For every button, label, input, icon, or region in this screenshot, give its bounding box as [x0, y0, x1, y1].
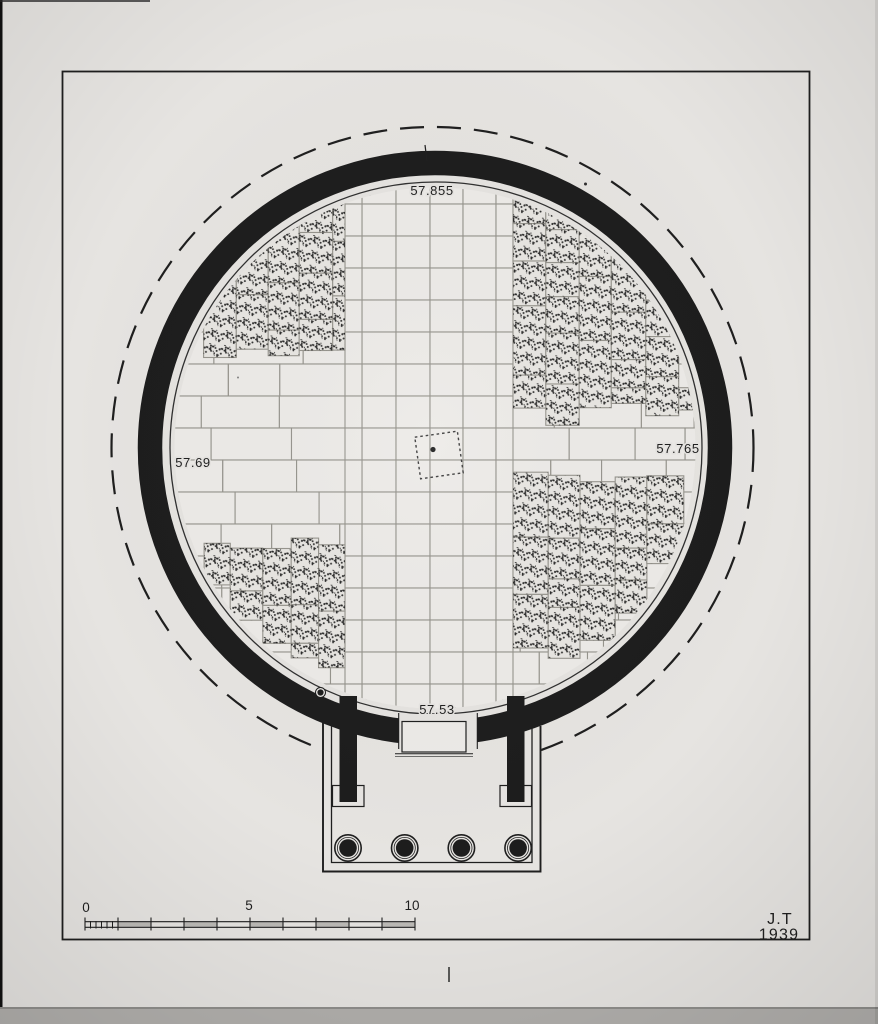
stipple-texture	[268, 283, 299, 330]
stipple-texture	[615, 477, 647, 548]
pavement-slab	[430, 652, 463, 684]
pavement-slab	[463, 396, 496, 428]
stipple-texture	[580, 585, 615, 640]
scale-label-5: 5	[245, 898, 253, 913]
pavement-slab	[362, 492, 396, 524]
pavement-slab	[496, 556, 513, 588]
pavement-slab	[430, 588, 463, 620]
pavement-slab	[362, 652, 396, 684]
pavement-slab	[463, 652, 496, 684]
stipple-texture	[299, 273, 333, 319]
pavement-slab	[345, 524, 362, 556]
pavement-slab	[496, 428, 513, 460]
stipple-texture	[333, 241, 345, 296]
pavement-slab	[463, 268, 496, 300]
stipple-texture	[513, 537, 548, 594]
pavement-slab	[430, 396, 463, 428]
pavement-cross-arm	[345, 172, 513, 748]
pavement-slab	[396, 364, 430, 396]
pavement-slab	[396, 332, 430, 364]
film-edge-tick	[448, 967, 450, 982]
pavement-slab	[430, 620, 463, 652]
pavement-slab	[463, 364, 496, 396]
pavement-slab	[430, 524, 463, 556]
stipple-texture	[546, 333, 579, 384]
pavement-slab	[345, 364, 362, 396]
pavement-slab	[430, 332, 463, 364]
pavement-slab	[362, 332, 396, 364]
pavement-slab	[463, 492, 496, 524]
pavement-slab	[345, 460, 362, 492]
stipple-texture	[580, 482, 615, 529]
pavement-slab	[496, 620, 513, 652]
pavement-slab	[235, 492, 319, 524]
pavement-slab	[362, 524, 396, 556]
signature-initials: J.T	[767, 911, 793, 928]
pavement-slab	[463, 460, 496, 492]
pavement-slab	[396, 556, 430, 588]
pavement-slab	[496, 204, 513, 236]
elevation-label-right: 57.765	[656, 441, 699, 456]
pavement-slab	[396, 236, 430, 268]
pavement-slab	[430, 460, 463, 492]
anta-wall-left	[340, 696, 358, 802]
pavement-slab	[496, 236, 513, 268]
pavement-slab	[430, 492, 463, 524]
pavement-slab	[505, 428, 570, 460]
pavement-slab	[362, 300, 396, 332]
pavement-slab	[396, 268, 430, 300]
plan-drawing: 57.855 57.69 57.765 57.53 0 5 10 J.T 193…	[0, 0, 878, 1024]
stipple-texture	[579, 277, 611, 341]
pavement-slab	[345, 556, 362, 588]
pavement-slab	[396, 492, 430, 524]
photograph-of-plan: 57.855 57.69 57.765 57.53 0 5 10 J.T 193…	[0, 0, 878, 1024]
pavement-slab	[362, 204, 396, 236]
porch-column-shaft	[396, 839, 414, 857]
stipple-texture	[263, 605, 292, 643]
stipple-texture	[513, 306, 546, 375]
pavement-slab	[396, 620, 430, 652]
pavement-slab	[569, 428, 635, 460]
pavement-slab	[496, 364, 513, 396]
pavement-slab	[463, 300, 496, 332]
pavement-slab	[345, 652, 362, 684]
stipple-texture	[291, 643, 318, 658]
pavement-slab	[345, 620, 362, 652]
stipple-texture	[230, 548, 263, 591]
stipple-texture	[333, 296, 345, 350]
stipple-texture	[513, 594, 548, 648]
pavement-slab	[396, 460, 430, 492]
pavement-slab	[345, 428, 362, 460]
pavement-slab	[396, 588, 430, 620]
pavement-slab	[345, 332, 362, 364]
photo-bottom-band	[0, 1009, 878, 1024]
pavement-slab	[345, 300, 362, 332]
pavement-slab	[430, 300, 463, 332]
scale-label-0: 0	[82, 900, 90, 915]
scale-segment-dark	[382, 922, 415, 926]
scale-segment-dark	[250, 922, 283, 926]
stipple-texture	[299, 319, 333, 350]
pavement-slab	[223, 460, 297, 492]
stipple-texture	[580, 529, 615, 586]
stipple-texture	[611, 312, 646, 359]
pavement-slab	[345, 492, 362, 524]
speck	[584, 183, 587, 186]
pavement-slab	[345, 236, 362, 268]
pavement-slab	[463, 556, 496, 588]
pavement-slab	[228, 364, 279, 396]
anta-wall-right	[507, 696, 525, 802]
stipple-texture	[513, 472, 548, 537]
photo-top-edge	[0, 0, 150, 2]
elevation-label-bottom: 57.53	[419, 702, 455, 717]
pavement-slab	[430, 556, 463, 588]
pavement-slab	[362, 236, 396, 268]
elevation-label-left: 57.69	[175, 455, 211, 470]
stipple-texture	[513, 261, 546, 306]
pavement-slab	[396, 652, 430, 684]
photo-bottom-edge-line	[0, 1007, 878, 1009]
stipple-texture	[546, 384, 579, 425]
stipple-texture	[647, 476, 684, 524]
signature-year: 1939	[759, 927, 799, 944]
stipple-texture	[615, 548, 647, 580]
scale-segment-dark	[118, 922, 151, 926]
pavement-slab	[496, 460, 513, 492]
pavement-slab	[463, 332, 496, 364]
porch-column-shaft	[339, 839, 357, 857]
stipple-texture	[299, 233, 333, 274]
pavement-slab	[430, 236, 463, 268]
pavement-slab	[463, 204, 496, 236]
pavement-slab	[496, 332, 513, 364]
photo-left-edge	[0, 0, 3, 1010]
pavement-slab	[463, 588, 496, 620]
pavement-slab	[396, 428, 430, 460]
pavement-slab	[496, 524, 513, 556]
stipple-texture	[319, 611, 345, 668]
pavement-slab	[396, 204, 430, 236]
door-threshold	[402, 722, 466, 753]
stipple-texture	[546, 230, 579, 263]
pavement-slab	[396, 396, 430, 428]
pavement-slab	[362, 460, 396, 492]
stipple-texture	[513, 224, 546, 261]
pavement-slab	[345, 588, 362, 620]
stipple-texture	[268, 330, 299, 356]
stipple-texture	[579, 341, 611, 408]
porch-column-shaft	[453, 839, 471, 857]
stipple-texture	[646, 377, 679, 416]
stipple-texture	[546, 297, 579, 333]
stipple-texture	[611, 360, 646, 388]
pavement-slab	[362, 556, 396, 588]
stipple-texture	[513, 375, 546, 408]
pavement-slab	[430, 364, 463, 396]
doorway	[395, 713, 477, 757]
stipple-texture	[319, 545, 345, 611]
stipple-texture	[548, 607, 580, 658]
pavement-slab	[297, 460, 350, 492]
pavement-slab	[463, 428, 496, 460]
porch-column-shaft	[509, 839, 527, 857]
stipple-texture	[548, 538, 580, 579]
pavement-slab	[496, 588, 513, 620]
stipple-texture	[611, 388, 646, 404]
stipple-texture	[236, 295, 268, 350]
pavement-slab	[430, 204, 463, 236]
pavement-slab	[430, 268, 463, 300]
drain-hole	[317, 689, 323, 695]
pavement-slab	[362, 396, 396, 428]
pavement-slab	[496, 492, 513, 524]
stipple-texture	[548, 475, 580, 538]
stipple-texture	[291, 538, 318, 605]
pavement-slab	[201, 396, 279, 428]
pavement-slab	[362, 428, 396, 460]
pavement-slab	[396, 300, 430, 332]
pavement-slab	[345, 268, 362, 300]
pavement-slab	[496, 268, 513, 300]
stipple-texture	[548, 579, 580, 608]
pavement-slab	[463, 236, 496, 268]
stipple-texture	[263, 549, 292, 606]
pavement-slab	[362, 620, 396, 652]
pavement-drain	[316, 688, 326, 698]
speck	[237, 377, 239, 379]
pavement-slab	[345, 396, 362, 428]
pavement-slab	[279, 396, 348, 428]
pavement-slab	[345, 204, 362, 236]
center-dot	[430, 447, 435, 452]
elevation-label-top: 57.855	[410, 183, 453, 198]
pavement-slab	[362, 588, 396, 620]
pavement-slab	[396, 524, 430, 556]
pavement-slab	[211, 428, 291, 460]
pavement-slab	[496, 652, 513, 684]
stipple-texture	[291, 605, 318, 644]
pavement-slab	[362, 364, 396, 396]
pavement-slab	[463, 524, 496, 556]
pavement-slab	[496, 300, 513, 332]
pavement-slab	[362, 268, 396, 300]
pavement-slab	[496, 396, 513, 428]
stipple-texture	[546, 263, 579, 297]
scale-label-10: 10	[404, 898, 419, 913]
scale-segment-dark	[184, 922, 217, 926]
pavement-slab	[463, 620, 496, 652]
scale-segment-dark	[316, 922, 349, 926]
